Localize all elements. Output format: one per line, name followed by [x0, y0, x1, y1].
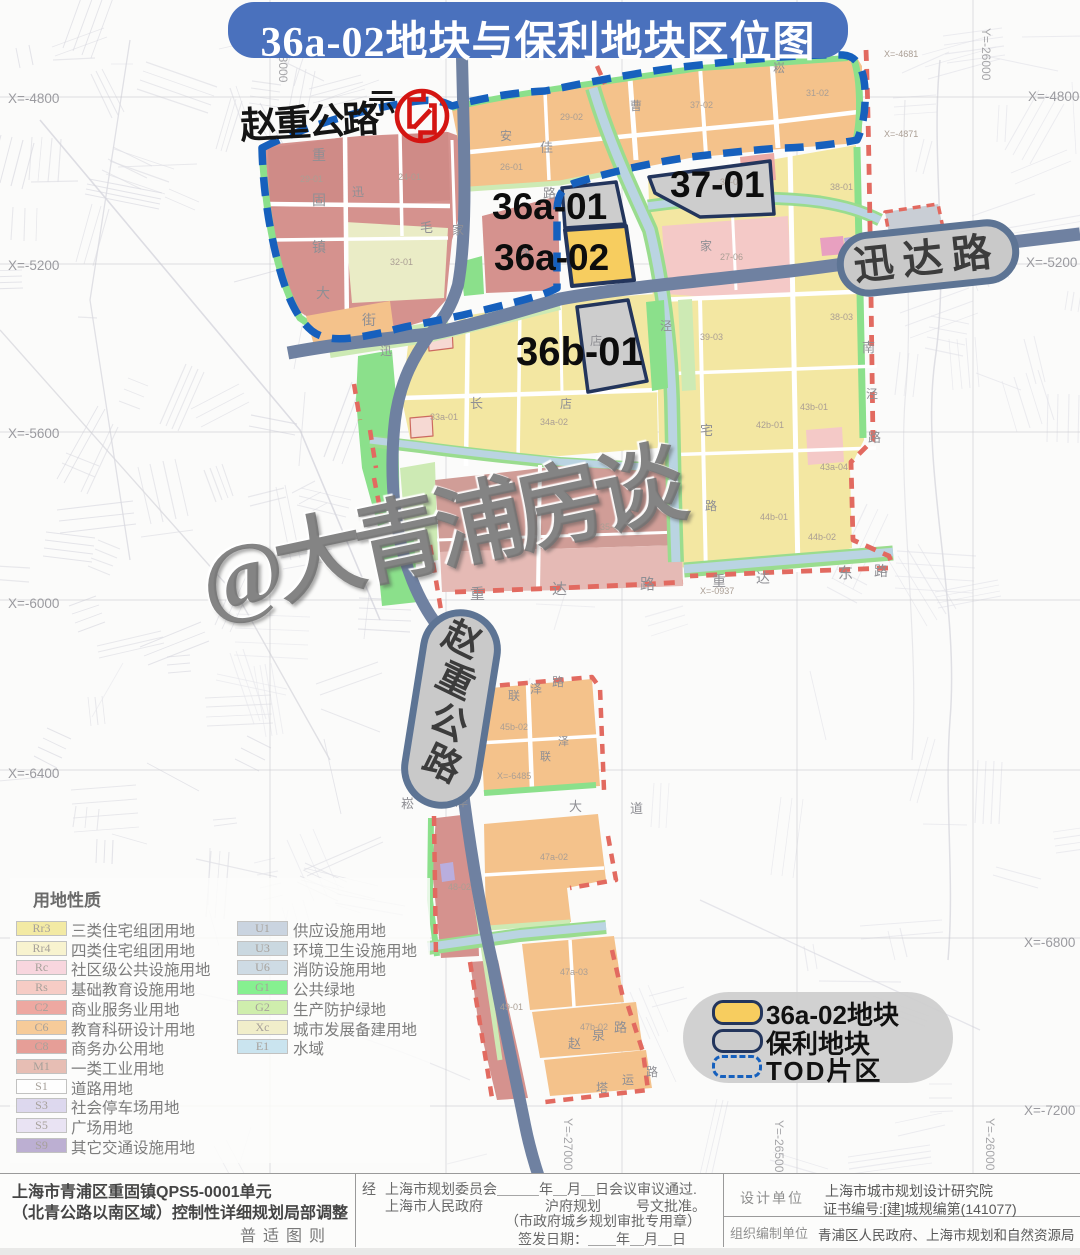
- svg-text:47a-03: 47a-03: [560, 967, 588, 977]
- svg-text:29-02: 29-02: [560, 112, 583, 122]
- svg-text:X=-4800: X=-4800: [8, 91, 59, 106]
- svg-text:47a-02: 47a-02: [540, 852, 568, 862]
- svg-text:33a-01: 33a-01: [430, 412, 458, 422]
- svg-text:Y=-26500: Y=-26500: [772, 1120, 786, 1173]
- svg-text:达: 达: [756, 570, 770, 586]
- svg-text:47b-02: 47b-02: [580, 1022, 608, 1032]
- svg-text:X=-6000: X=-6000: [8, 596, 59, 611]
- svg-text:大: 大: [316, 285, 330, 301]
- svg-text:34a-02: 34a-02: [540, 417, 568, 427]
- svg-text:东: 东: [838, 565, 853, 582]
- svg-text:Y=-26000: Y=-26000: [983, 1118, 997, 1171]
- svg-text:38-01: 38-01: [830, 182, 853, 192]
- svg-text:45b-02: 45b-02: [500, 722, 528, 732]
- svg-text:长: 长: [470, 396, 483, 411]
- svg-text:24-01: 24-01: [398, 172, 421, 182]
- svg-text:X=-6800: X=-6800: [1024, 935, 1075, 950]
- svg-text:路: 路: [868, 430, 881, 445]
- svg-text:路: 路: [552, 674, 564, 689]
- svg-text:X=-5600: X=-5600: [8, 426, 59, 441]
- svg-text:27-06: 27-06: [720, 252, 743, 262]
- svg-text:43a-04: 43a-04: [820, 462, 848, 472]
- svg-text:43b-01: 43b-01: [800, 402, 828, 412]
- svg-text:X=-4681: X=-4681: [884, 49, 918, 59]
- svg-text:塔: 塔: [596, 1081, 608, 1095]
- svg-text:重: 重: [312, 147, 326, 163]
- svg-text:32-01: 32-01: [390, 257, 413, 267]
- svg-text:26-01: 26-01: [500, 162, 523, 172]
- svg-text:道: 道: [630, 801, 643, 816]
- svg-text:X=-7200: X=-7200: [1024, 1103, 1075, 1118]
- svg-text:店: 店: [560, 397, 572, 411]
- svg-text:街: 街: [362, 312, 376, 328]
- svg-text:赵: 赵: [568, 1036, 581, 1051]
- svg-text:镇: 镇: [312, 239, 326, 255]
- svg-text:固: 固: [312, 192, 326, 208]
- svg-text:崧: 崧: [401, 796, 414, 811]
- svg-text:联: 联: [540, 750, 551, 763]
- svg-text:路: 路: [874, 563, 888, 579]
- svg-text:49-01: 49-01: [500, 1002, 523, 1012]
- svg-text:路: 路: [614, 1020, 627, 1035]
- svg-text:达: 达: [552, 581, 567, 598]
- svg-text:家: 家: [700, 238, 712, 253]
- svg-text:42b-01: 42b-01: [756, 420, 784, 430]
- svg-text:路: 路: [640, 576, 655, 593]
- svg-text:泽: 泽: [558, 735, 569, 748]
- svg-text:泽: 泽: [530, 682, 542, 696]
- svg-text:48-02: 48-02: [448, 882, 471, 892]
- svg-text:泾: 泾: [660, 319, 672, 333]
- svg-text:X=-5200: X=-5200: [1026, 255, 1077, 270]
- svg-text:泾: 泾: [866, 387, 878, 401]
- svg-text:重: 重: [470, 586, 485, 603]
- svg-text:X=-0937: X=-0937: [700, 586, 734, 596]
- svg-text:迅: 迅: [380, 344, 392, 358]
- svg-text:X=-6485: X=-6485: [497, 771, 531, 781]
- svg-text:38-03: 38-03: [830, 312, 853, 322]
- svg-text:佳: 佳: [540, 140, 553, 155]
- svg-text:路: 路: [646, 1064, 658, 1079]
- svg-text:联: 联: [508, 689, 520, 703]
- svg-text:Y=-27000: Y=-27000: [561, 1118, 575, 1171]
- svg-text:家: 家: [452, 222, 464, 237]
- svg-text:南: 南: [862, 340, 875, 355]
- svg-text:曹: 曹: [630, 99, 642, 113]
- svg-text:31-02: 31-02: [806, 88, 829, 98]
- svg-text:39-03: 39-03: [700, 332, 723, 342]
- svg-text:路: 路: [705, 498, 717, 513]
- svg-text:宅: 宅: [700, 423, 713, 438]
- svg-text:37-02: 37-02: [690, 100, 713, 110]
- svg-text:44b-02: 44b-02: [808, 532, 836, 542]
- svg-text:X=-4800: X=-4800: [1028, 89, 1079, 104]
- svg-text:44b-01: 44b-01: [760, 512, 788, 522]
- svg-text:29-01: 29-01: [300, 174, 323, 184]
- svg-text:迅: 迅: [352, 185, 364, 199]
- svg-text:X=-5200: X=-5200: [8, 258, 59, 273]
- svg-text:大: 大: [569, 799, 582, 814]
- svg-text:X=-6400: X=-6400: [8, 766, 59, 781]
- svg-text:毛: 毛: [420, 220, 433, 235]
- svg-text:运: 运: [622, 1073, 634, 1087]
- svg-text:X=-4871: X=-4871: [884, 129, 918, 139]
- svg-text:安: 安: [500, 128, 512, 143]
- svg-text:Y=-26000: Y=-26000: [979, 28, 993, 81]
